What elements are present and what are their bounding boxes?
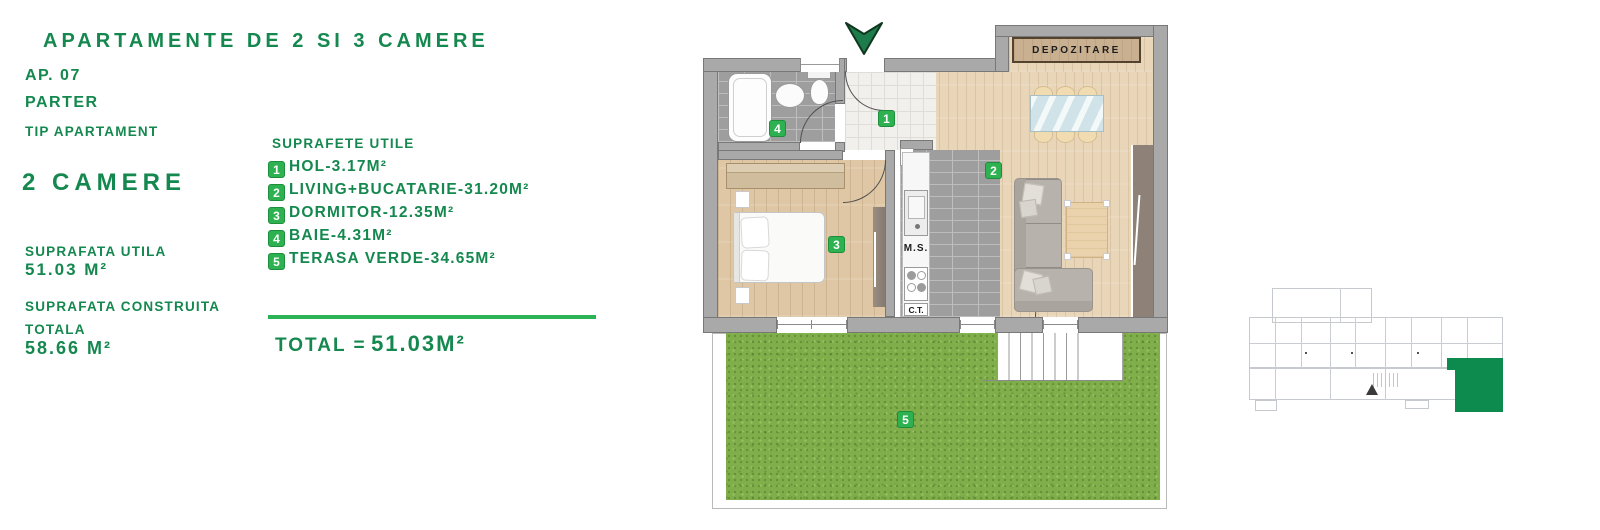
bathroom-sink [775,83,805,108]
burner [917,271,926,280]
mini-plan-line [1275,317,1276,368]
legend-total: TOTAL = 51.03M² [275,331,466,357]
sofa-pillow [1032,275,1052,295]
usable-area-label: SUPRAFATA UTILA [25,244,167,259]
apartment-type-label: TIP APARTAMENT [25,124,158,139]
legend-badge-5: 5 [268,253,285,270]
wardrobe-top [727,164,844,173]
sofa-pillow [1019,199,1038,218]
dim-tick [1043,320,1044,329]
bed-headboard [734,213,740,282]
wall-bottom-1 [703,317,777,333]
legend-label-2: LIVING+BUCATARIE-31.20M² [289,181,530,198]
built-area-label2: TOTALA [25,322,86,337]
legend-item-dormitor: 3DORMITOR-12.35M² [268,204,454,224]
usable-area-value: 51.03 M² [25,260,108,280]
wall-bedroom-right [885,150,895,317]
kitchen-faucet [915,224,920,229]
boiler-label: C.T. [905,305,927,315]
marker-living: 2 [985,162,1002,179]
bed [733,212,825,283]
total-label: TOTAL = [275,335,367,356]
pillow [740,250,769,282]
bedroom-tv [874,232,876,287]
mini-plan-line [1330,368,1331,400]
mini-plan-dot [1417,352,1419,354]
table-foot [1103,253,1110,260]
built-area-label: SUPRAFATA CONSTRUITA [25,299,220,314]
storage-box: DEPOZITARE [1012,37,1141,63]
mini-plan-line [1275,368,1276,400]
rooms-count: 2 CAMERE [22,169,186,197]
wall-bottom-2 [847,317,960,333]
legend-divider [268,315,596,319]
nightstand [735,191,750,208]
legend-badge-3: 3 [268,207,285,224]
wall-bottom-3 [995,317,1043,333]
burner [907,283,916,292]
dim-tick [811,320,812,329]
wall-top-mid [884,58,1005,72]
dining-table [1030,95,1104,132]
dim-tick [1077,320,1078,329]
dim-line-3 [1043,324,1078,325]
built-area-value: 58.66 M² [25,338,112,359]
legend-label-4: BAIE-4.31M² [289,227,393,244]
burner [907,271,916,280]
north-arrow-icon [845,22,883,56]
highlighted-unit [1455,358,1503,412]
bathtub [728,73,772,142]
kitchen-sink-basin [908,196,925,219]
marker-dormitor: 3 [828,236,845,253]
legend-badge-1: 1 [268,161,285,178]
terrace-stairs [997,333,1123,381]
floor-plan: M.S. C.T. DEPOZITARE [703,14,1170,510]
legend-heading: SUPRAFETE UTILE [272,136,415,151]
bathtub-inner [733,78,767,137]
legend-item-hol: 1HOL-3.17M² [268,158,387,178]
stair-steps [997,333,1089,380]
marker-hol: 1 [878,110,895,127]
wall-bottom-4 [1078,317,1168,333]
door-opening-terrace-2 [1043,317,1078,333]
mini-plan-line [1249,343,1503,344]
kitchen-sink [904,190,928,236]
mini-site-plan [1245,280,1507,420]
apartment-sheet: APARTAMENTE DE 2 SI 3 CAMERE AP. 07 PART… [0,0,1600,530]
living-tv-unit [1131,145,1153,317]
window-opening-bedroom [777,317,847,333]
toilet-bowl [810,79,829,105]
marker-baie: 4 [769,120,786,137]
window-glass-line [801,64,839,65]
mini-plan-line [1301,317,1302,368]
mini-plan-tab [1405,400,1429,409]
pillow [740,216,770,248]
wall-bedroom-top [718,150,843,160]
legend-label-3: DORMITOR-12.35M² [289,204,454,221]
washing-machine-label: M.S. [900,243,932,254]
mini-plan-line [1385,317,1386,368]
stair-rail-line [982,380,1123,381]
table-foot [1064,200,1071,207]
wall-top-right [995,25,1168,37]
mini-plan-line [1411,317,1412,368]
legend-badge-2: 2 [268,184,285,201]
door-opening-terrace-1 [960,317,995,333]
boiler-box: C.T. [904,303,928,316]
nightstand [735,287,750,304]
mini-plan-arrow-icon [1366,384,1378,395]
mini-plan-dot [1305,352,1307,354]
dim-line-1 [777,324,847,325]
legend-item-living: 2LIVING+BUCATARIE-31.20M² [268,181,530,201]
total-value: 51.03M² [371,331,466,356]
wardrobe [726,163,845,189]
apartment-number: AP. 07 [25,67,81,85]
dim-tick [960,320,961,329]
mini-plan-line [1330,317,1331,368]
dim-tick [994,320,995,329]
legend-item-baie: 4BAIE-4.31M² [268,227,393,247]
mini-plan-dot [1351,352,1353,354]
table-foot [1064,253,1071,260]
legend-item-terasa: 5TERASA VERDE-34.65M² [268,250,496,270]
storage-label: DEPOZITARE [1014,45,1139,56]
stove [904,267,928,301]
legend-label-5: TERASA VERDE-34.65M² [289,250,496,267]
dim-tick [846,320,847,329]
wall-right [1153,25,1168,333]
bathroom-window [800,58,840,72]
mini-plan-line [1355,317,1356,368]
dim-line-2 [960,324,995,325]
legend-label-1: HOL-3.17M² [289,158,387,175]
table-foot [1103,200,1110,207]
mini-plan-tab [1255,400,1277,411]
mini-plan-line [1441,317,1442,368]
coffee-table [1066,202,1108,258]
dim-tick [777,320,778,329]
wall-left [703,58,718,333]
burner [917,283,926,292]
floor-label: PARTER [25,94,99,112]
page-title: APARTAMENTE DE 2 SI 3 CAMERE [43,30,489,53]
legend-badge-4: 4 [268,230,285,247]
marker-terasa: 5 [897,411,914,428]
